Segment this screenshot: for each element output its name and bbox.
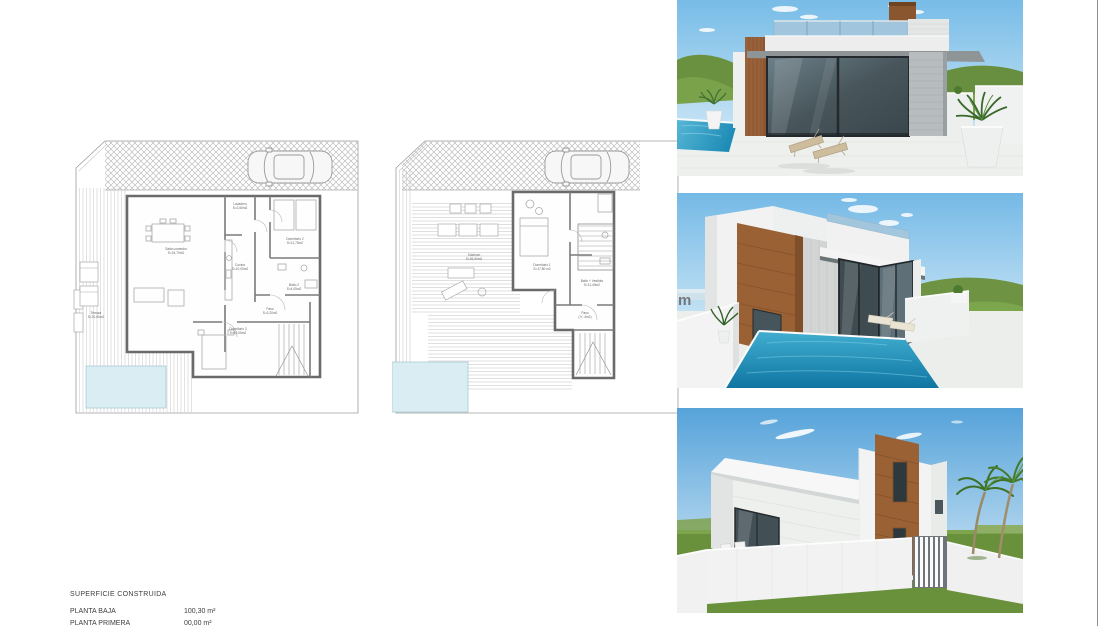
render-photo-2: m xyxy=(677,193,1023,388)
svg-text:S=10,00m2: S=10,00m2 xyxy=(232,267,249,271)
ground-floor-plan: Lavadero S=2,60m2 Salón-comedor S=24,70m… xyxy=(72,140,360,415)
planta-baja-label: PLANTA BAJA xyxy=(70,608,182,615)
svg-text:S=11,70m2: S=11,70m2 xyxy=(287,241,303,245)
svg-text:S=17,80 m2: S=17,80 m2 xyxy=(533,267,551,271)
render-photo-1 xyxy=(677,0,1023,176)
architectural-sheet: { "summary": { "title": "SUPERFICIE CONS… xyxy=(0,0,1110,626)
page-edge-line xyxy=(1097,0,1098,626)
svg-text:S=10,05m2: S=10,05m2 xyxy=(230,331,247,335)
svg-text:S=21,80m2: S=21,80m2 xyxy=(88,315,105,319)
svg-text:S=3,20m2: S=3,20m2 xyxy=(263,311,278,315)
car-icon xyxy=(248,148,332,186)
planta-baja-value: 100,30 m² xyxy=(184,608,216,615)
surface-summary: SUPERFICIE CONSTRUIDA PLANTA BAJA 100,30… xyxy=(70,591,167,598)
watermark-fragment: m xyxy=(678,292,691,309)
svg-text:S=4,05m2: S=4,05m2 xyxy=(287,287,302,291)
svg-text:(+/- 4m2): (+/- 4m2) xyxy=(578,315,591,319)
pool xyxy=(392,362,468,412)
pool xyxy=(677,119,737,152)
ground-floor-plan-drawing: Lavadero S=2,60m2 Salón-comedor S=24,70m… xyxy=(72,140,360,415)
pool xyxy=(86,366,166,408)
first-floor-plan: Solarium S=45,60m2 Dormitorio 1 S=17,80 … xyxy=(392,140,680,415)
render-photo-3 xyxy=(677,408,1023,613)
svg-text:S=24,70m2: S=24,70m2 xyxy=(168,251,185,255)
svg-text:S=45,60m2: S=45,60m2 xyxy=(466,257,483,261)
svg-text:S=11,40m2: S=11,40m2 xyxy=(584,283,600,287)
summary-title: SUPERFICIE CONSTRUIDA xyxy=(70,591,167,598)
svg-text:S=2,60m2: S=2,60m2 xyxy=(233,206,248,210)
summary-row-planta-baja: PLANTA BAJA 100,30 m² xyxy=(70,608,215,615)
first-floor-plan-drawing: Solarium S=45,60m2 Dormitorio 1 S=17,80 … xyxy=(392,140,680,415)
car-icon xyxy=(545,148,629,186)
